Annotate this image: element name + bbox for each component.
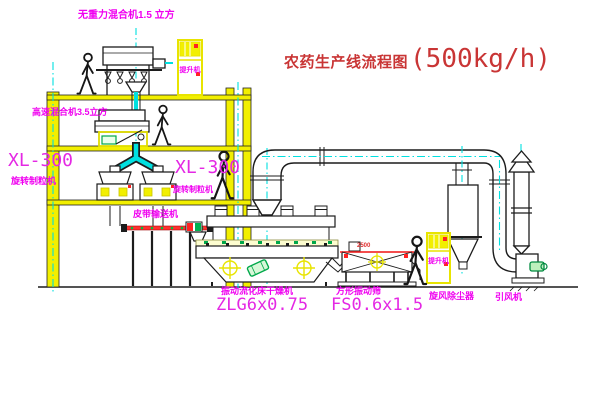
label-cyclone: 旋风除尘器 bbox=[429, 292, 474, 301]
label-granulator-left-model: XL-300 bbox=[8, 152, 73, 170]
label-sieve-model: FS0.6x1.5 bbox=[331, 297, 423, 314]
label-hoist-right: 提升机 bbox=[428, 258, 449, 265]
label-granulator-right-name: 旋转制粒机 bbox=[173, 186, 213, 194]
label-dryer-model: ZLG6x0.75 bbox=[216, 297, 308, 314]
title-capacity: (500kg/h) bbox=[410, 44, 551, 74]
label-hoist-top: 提升机 bbox=[179, 67, 201, 74]
square-sieve-machine bbox=[338, 242, 420, 286]
person-figure bbox=[77, 54, 95, 94]
label-granulator-left-name: 旋转制粒机 bbox=[11, 177, 56, 186]
flow-diagram-canvas: 农药生产线流程图 (500kg/h) 无重力混合机1.5 立方 高速混合机3.5… bbox=[0, 0, 600, 403]
label-granulator-right-model: XL-300 bbox=[175, 159, 240, 177]
label-fan: 引风机 bbox=[495, 293, 522, 302]
label-high-speed-mixer: 高速混合机3.5立方 bbox=[32, 108, 108, 117]
person-figure bbox=[153, 106, 171, 145]
induced-draft-fan-machine bbox=[510, 254, 547, 291]
label-sieve-dimension: 2500 bbox=[357, 243, 370, 249]
label-gravity-mixer: 无重力混合机1.5 立方 bbox=[78, 11, 175, 21]
diagram-title: 农药生产线流程图 (500kg/h) bbox=[284, 44, 551, 74]
label-belt-conveyor: 皮带输送机 bbox=[133, 210, 178, 219]
granulator-left-machine bbox=[97, 166, 133, 226]
title-text: 农药生产线流程图 bbox=[284, 51, 408, 72]
